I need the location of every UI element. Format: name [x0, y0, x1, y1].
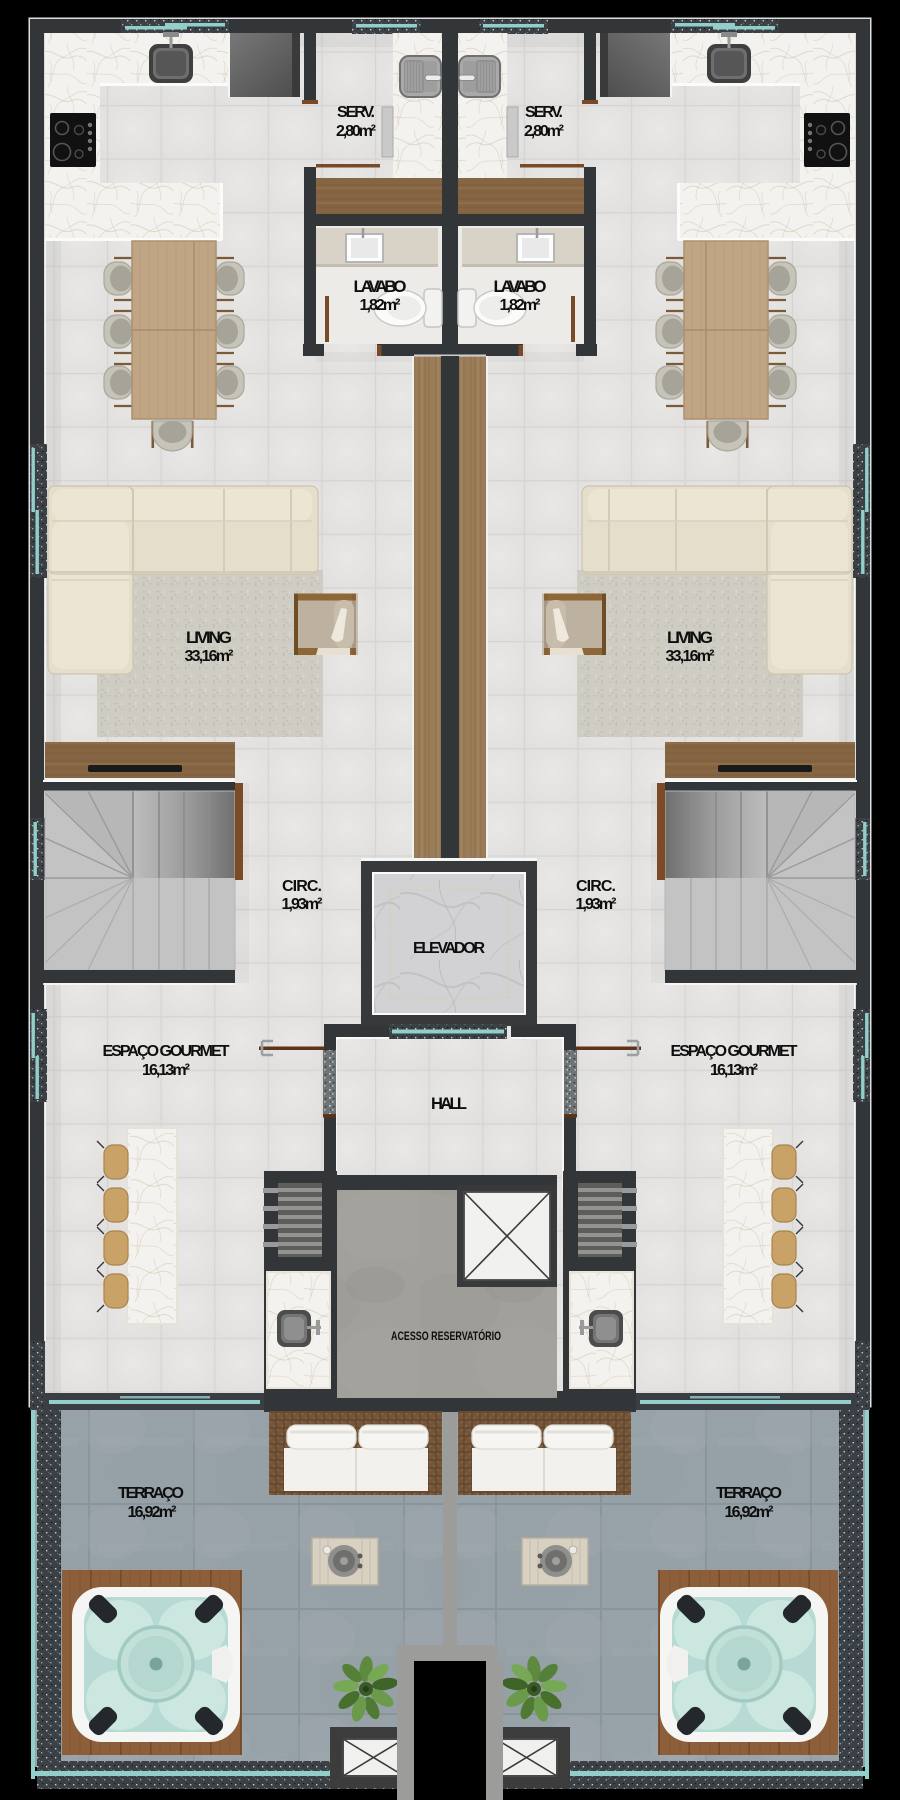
svg-text:SERV.: SERV. — [337, 104, 375, 121]
svg-text:16,92m²: 16,92m² — [128, 1504, 177, 1521]
svg-text:33,16m²: 33,16m² — [185, 648, 234, 665]
svg-text:LIVING: LIVING — [667, 628, 713, 647]
svg-text:LAVABO: LAVABO — [494, 277, 547, 296]
svg-text:LAVABO: LAVABO — [354, 277, 407, 296]
svg-text:TERRAÇO: TERRAÇO — [118, 1485, 184, 1502]
svg-text:1,93m²: 1,93m² — [282, 896, 323, 913]
svg-text:HALL: HALL — [431, 1095, 467, 1113]
svg-text:1,82m²: 1,82m² — [500, 297, 541, 314]
svg-text:TERRAÇO: TERRAÇO — [716, 1485, 782, 1502]
svg-text:ESPAÇO GOURMET: ESPAÇO GOURMET — [103, 1043, 230, 1060]
svg-text:CIRC.: CIRC. — [576, 878, 616, 895]
svg-text:1,82m²: 1,82m² — [360, 297, 401, 314]
svg-text:ACESSO RESERVATÓRIO: ACESSO RESERVATÓRIO — [391, 1330, 501, 1343]
svg-text:CIRC.: CIRC. — [282, 878, 322, 895]
svg-text:SERV.: SERV. — [525, 104, 563, 121]
svg-text:16,13m²: 16,13m² — [710, 1062, 758, 1079]
svg-text:2,80m²: 2,80m² — [336, 123, 376, 140]
svg-text:ESPAÇO GOURMET: ESPAÇO GOURMET — [671, 1043, 798, 1060]
svg-text:16,13m²: 16,13m² — [142, 1062, 190, 1079]
svg-text:33,16m²: 33,16m² — [666, 648, 715, 665]
svg-text:2,80m²: 2,80m² — [524, 123, 564, 140]
svg-text:1,93m²: 1,93m² — [576, 896, 617, 913]
svg-text:16,92m²: 16,92m² — [725, 1504, 774, 1521]
svg-text:LIVING: LIVING — [186, 628, 232, 647]
svg-text:ELEVADOR: ELEVADOR — [413, 940, 485, 957]
